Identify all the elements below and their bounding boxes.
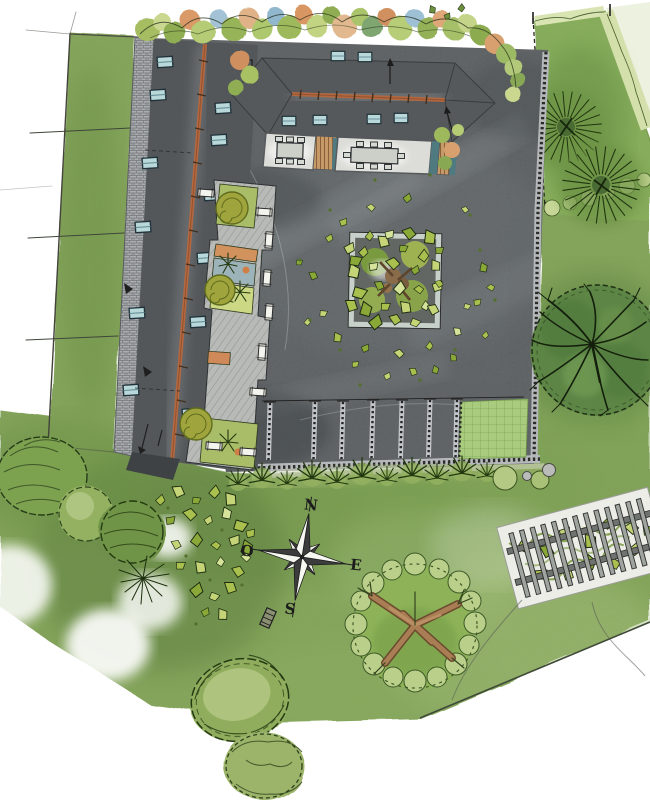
compass-label-east: E [349, 555, 362, 574]
compass-label-north: N [303, 495, 319, 514]
planting-bed [208, 351, 231, 365]
boulder [523, 472, 532, 481]
olive-tree [216, 192, 248, 224]
round-tree [345, 553, 486, 692]
site-plan-svg: N O E S [0, 0, 650, 812]
olive-tree [205, 275, 235, 305]
site-plan-canvas: N O E S [0, 0, 650, 812]
compass-label-south: S [284, 599, 297, 618]
boulder [543, 464, 556, 477]
grid-lawn-panel [459, 399, 528, 459]
compass-label-west: O [240, 541, 255, 560]
olive-tree [180, 408, 212, 440]
shrub-ball [493, 466, 517, 490]
scribble-shrub [224, 732, 304, 800]
dining-table [276, 137, 305, 165]
hatched-shrub [100, 500, 164, 564]
